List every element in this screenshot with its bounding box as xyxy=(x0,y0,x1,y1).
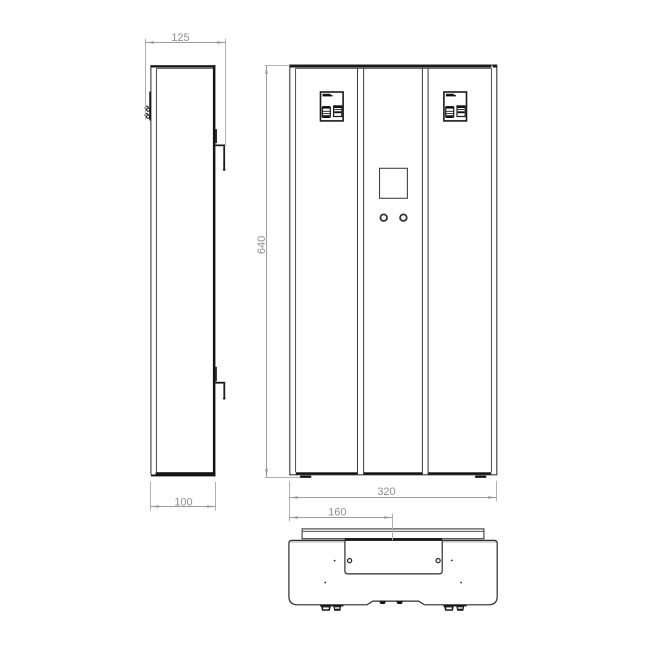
svg-text:100: 100 xyxy=(174,497,192,509)
svg-text:125: 125 xyxy=(171,32,189,44)
svg-text:640: 640 xyxy=(256,236,268,254)
svg-text:160: 160 xyxy=(328,506,346,518)
svg-text:320: 320 xyxy=(377,486,395,498)
